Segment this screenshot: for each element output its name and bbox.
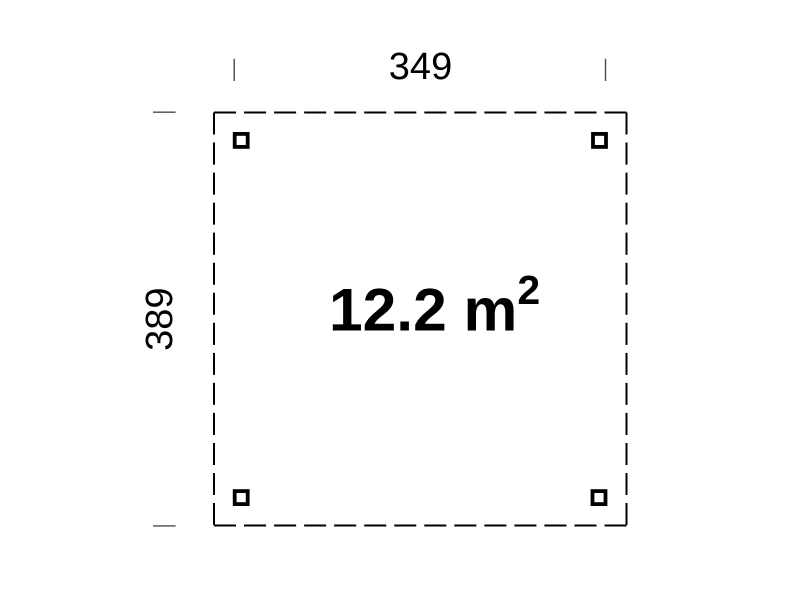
svg-text:12.2 m2: 12.2 m2 — [329, 267, 540, 344]
svg-text:389: 389 — [139, 287, 181, 350]
svg-text:349: 349 — [389, 46, 452, 88]
